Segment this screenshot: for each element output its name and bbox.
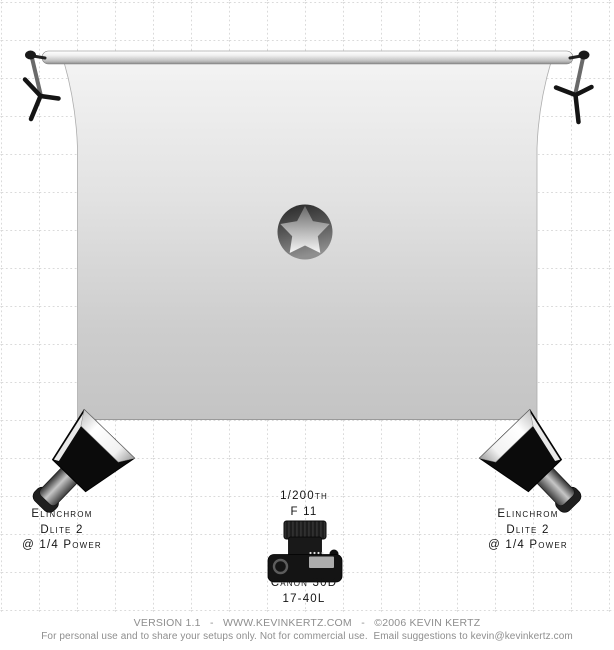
lighting-setup-diagram: Elinchrom Dlite 2 @ 1/4 Power Elinchrom … <box>0 0 614 650</box>
left-light-label-line3: @ 1/4 Power <box>22 538 102 554</box>
subject-marker-icon <box>278 205 333 260</box>
footer-version-credit: VERSION 1.1 - WWW.KEVINKERTZ.COM - ©2006… <box>134 617 481 629</box>
camera-exposure-label: 1/200th F 11 <box>280 489 328 520</box>
camera-model-label: Canon 30D 17-40L <box>271 576 338 607</box>
aperture-label: F 11 <box>280 505 328 521</box>
right-light-label: Elinchrom Dlite 2 @ 1/4 Power <box>488 507 568 554</box>
camera-lens-label: 17-40L <box>271 592 338 608</box>
left-light-label: Elinchrom Dlite 2 @ 1/4 Power <box>22 507 102 554</box>
left-light-label-line1: Elinchrom <box>22 507 102 523</box>
camera-body-label: Canon 30D <box>271 576 338 592</box>
right-light-label-line2: Dlite 2 <box>488 523 568 539</box>
shutter-speed-label: 1/200th <box>280 489 328 505</box>
right-light-label-line3: @ 1/4 Power <box>488 538 568 554</box>
left-light-label-line2: Dlite 2 <box>22 523 102 539</box>
crossbar-icon <box>42 51 573 64</box>
right-light-label-line1: Elinchrom <box>488 507 568 523</box>
footer-usage-note: For personal use and to share your setup… <box>41 631 573 642</box>
